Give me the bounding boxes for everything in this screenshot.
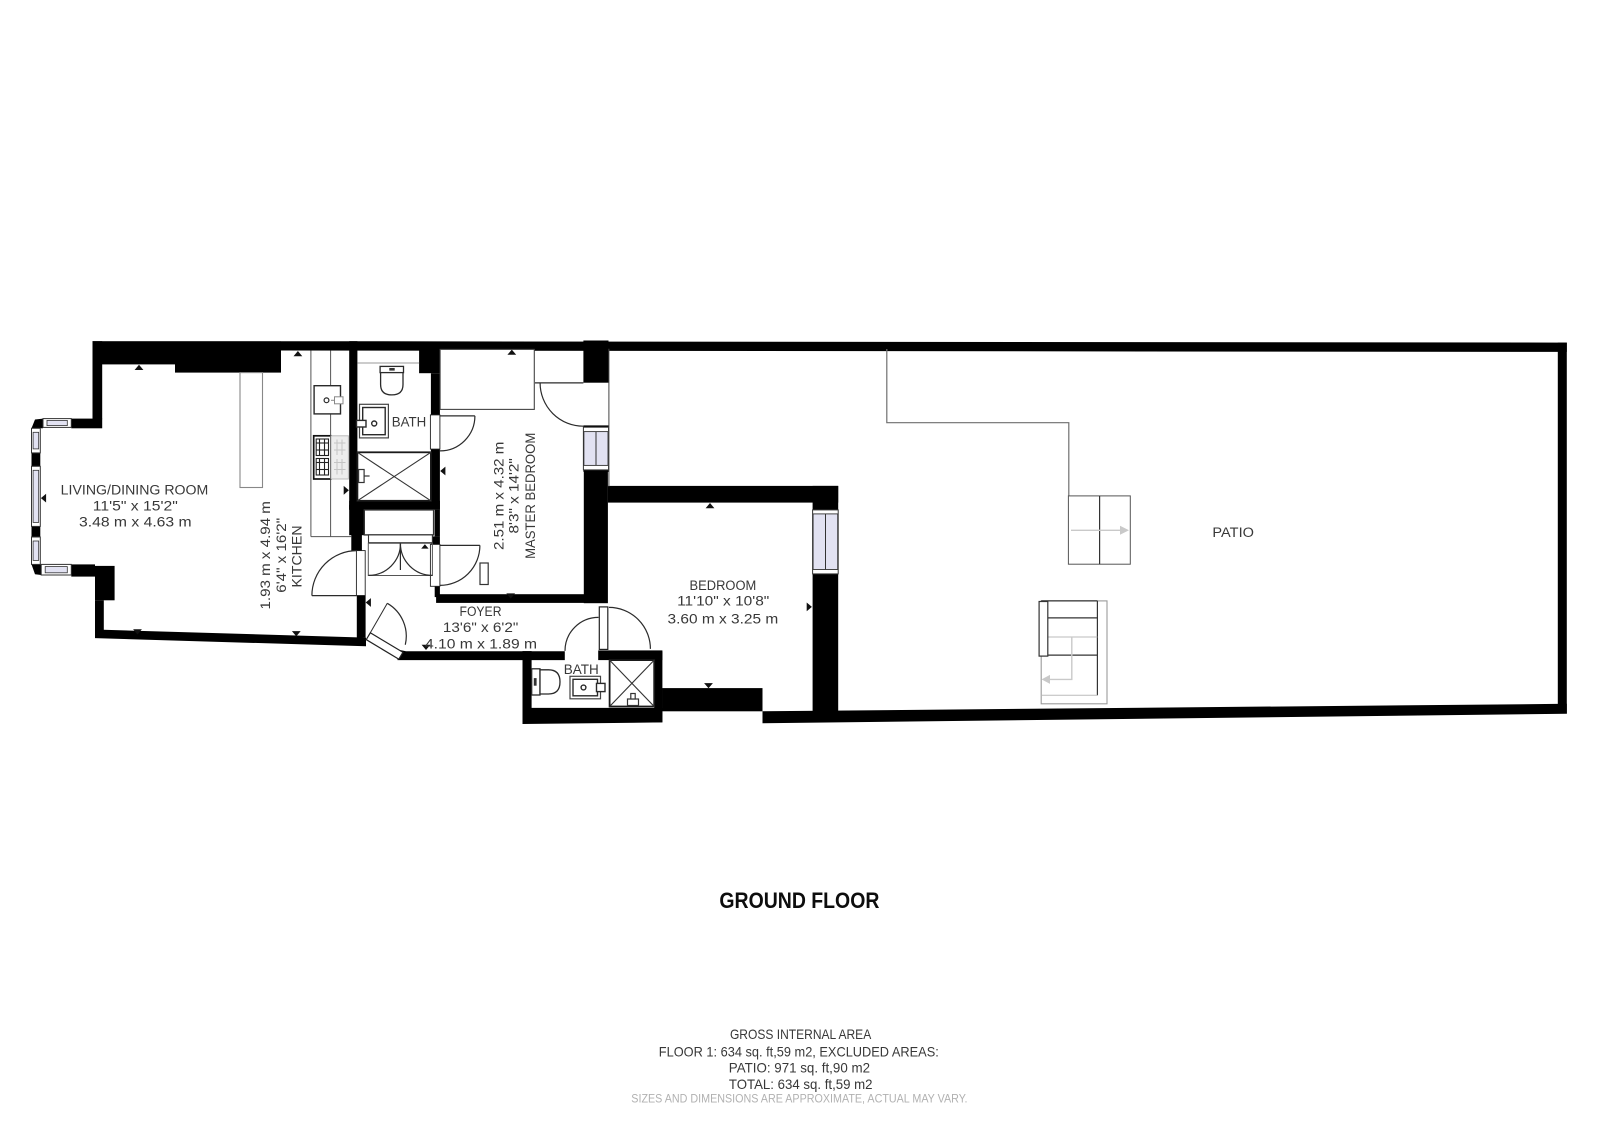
svg-text:GROSS INTERNAL AREA: GROSS INTERNAL AREA — [730, 1026, 872, 1042]
svg-text:LIVING/DINING ROOM: LIVING/DINING ROOM — [61, 483, 209, 498]
svg-text:BEDROOM: BEDROOM — [690, 578, 757, 593]
svg-text:SIZES AND DIMENSIONS ARE APPRO: SIZES AND DIMENSIONS ARE APPROXIMATE, AC… — [631, 1092, 967, 1106]
svg-text:BATH: BATH — [564, 662, 599, 677]
svg-text:GROUND FLOOR: GROUND FLOOR — [719, 888, 879, 913]
svg-text:KITCHEN: KITCHEN — [290, 525, 305, 587]
svg-text:8'3" x 14'2": 8'3" x 14'2" — [507, 458, 522, 534]
svg-text:3.60 m x 3.25 m: 3.60 m x 3.25 m — [668, 611, 779, 626]
svg-text:PATIO: 971 sq. ft,90 m2: PATIO: 971 sq. ft,90 m2 — [729, 1060, 870, 1076]
svg-text:1.93 m x 4.94 m: 1.93 m x 4.94 m — [258, 501, 273, 609]
svg-text:TOTAL: 634 sq. ft,59 m2: TOTAL: 634 sq. ft,59 m2 — [729, 1076, 873, 1092]
svg-text:FOYER: FOYER — [460, 604, 502, 619]
svg-text:4.10 m x 1.89 m: 4.10 m x 1.89 m — [425, 636, 537, 651]
svg-text:6'4" x 16'2": 6'4" x 16'2" — [274, 518, 289, 593]
svg-text:11'5" x 15'2": 11'5" x 15'2" — [93, 499, 178, 514]
svg-text:BATH: BATH — [392, 414, 427, 429]
svg-text:FLOOR 1: 634 sq. ft,59 m2, EXC: FLOOR 1: 634 sq. ft,59 m2, EXCLUDED AREA… — [659, 1043, 939, 1059]
svg-text:MASTER BEDROOM: MASTER BEDROOM — [523, 433, 538, 559]
svg-text:13'6" x 6'2": 13'6" x 6'2" — [443, 620, 519, 635]
svg-text:11'10" x 10'8": 11'10" x 10'8" — [677, 594, 769, 609]
svg-text:2.51 m x 4.32 m: 2.51 m x 4.32 m — [491, 442, 506, 550]
svg-text:PATIO: PATIO — [1212, 525, 1254, 540]
svg-text:3.48 m x 4.63 m: 3.48 m x 4.63 m — [79, 514, 192, 529]
